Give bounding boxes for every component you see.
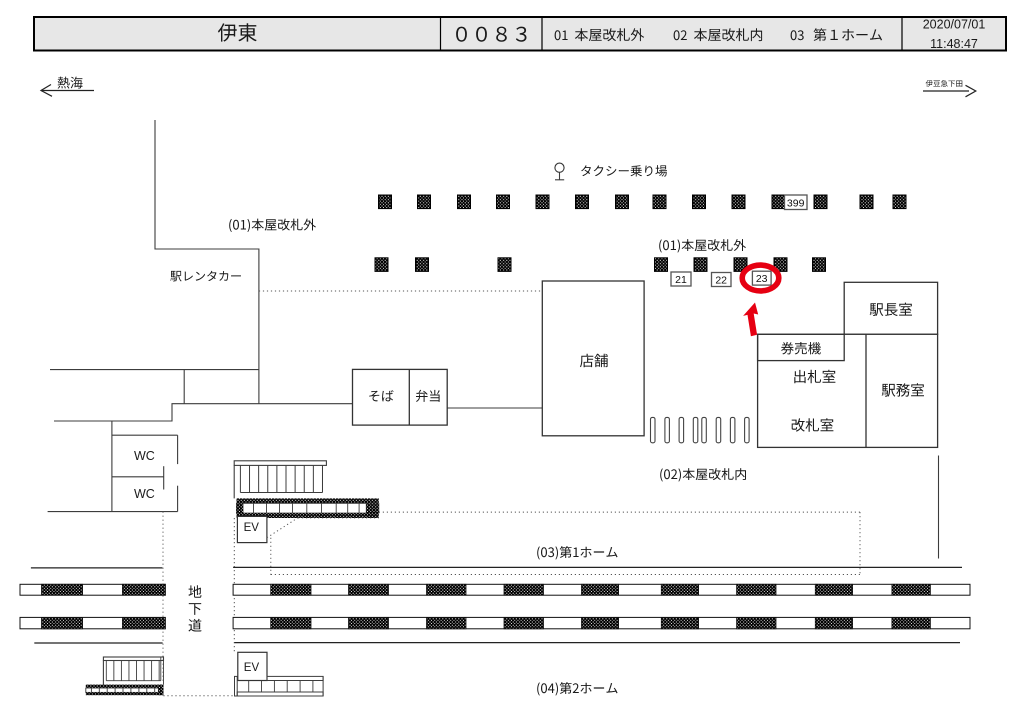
svg-text:11:48:47: 11:48:47 — [930, 37, 978, 51]
svg-text:WC: WC — [134, 487, 155, 501]
svg-text:399: 399 — [787, 197, 805, 209]
svg-text:EV: EV — [244, 662, 260, 674]
svg-text:23: 23 — [756, 273, 768, 285]
svg-text:2020/07/01: 2020/07/01 — [923, 17, 986, 31]
svg-text:22: 22 — [715, 275, 727, 287]
svg-text:WC: WC — [134, 449, 155, 463]
svg-text:21: 21 — [675, 274, 687, 286]
svg-text:EV: EV — [244, 522, 260, 534]
